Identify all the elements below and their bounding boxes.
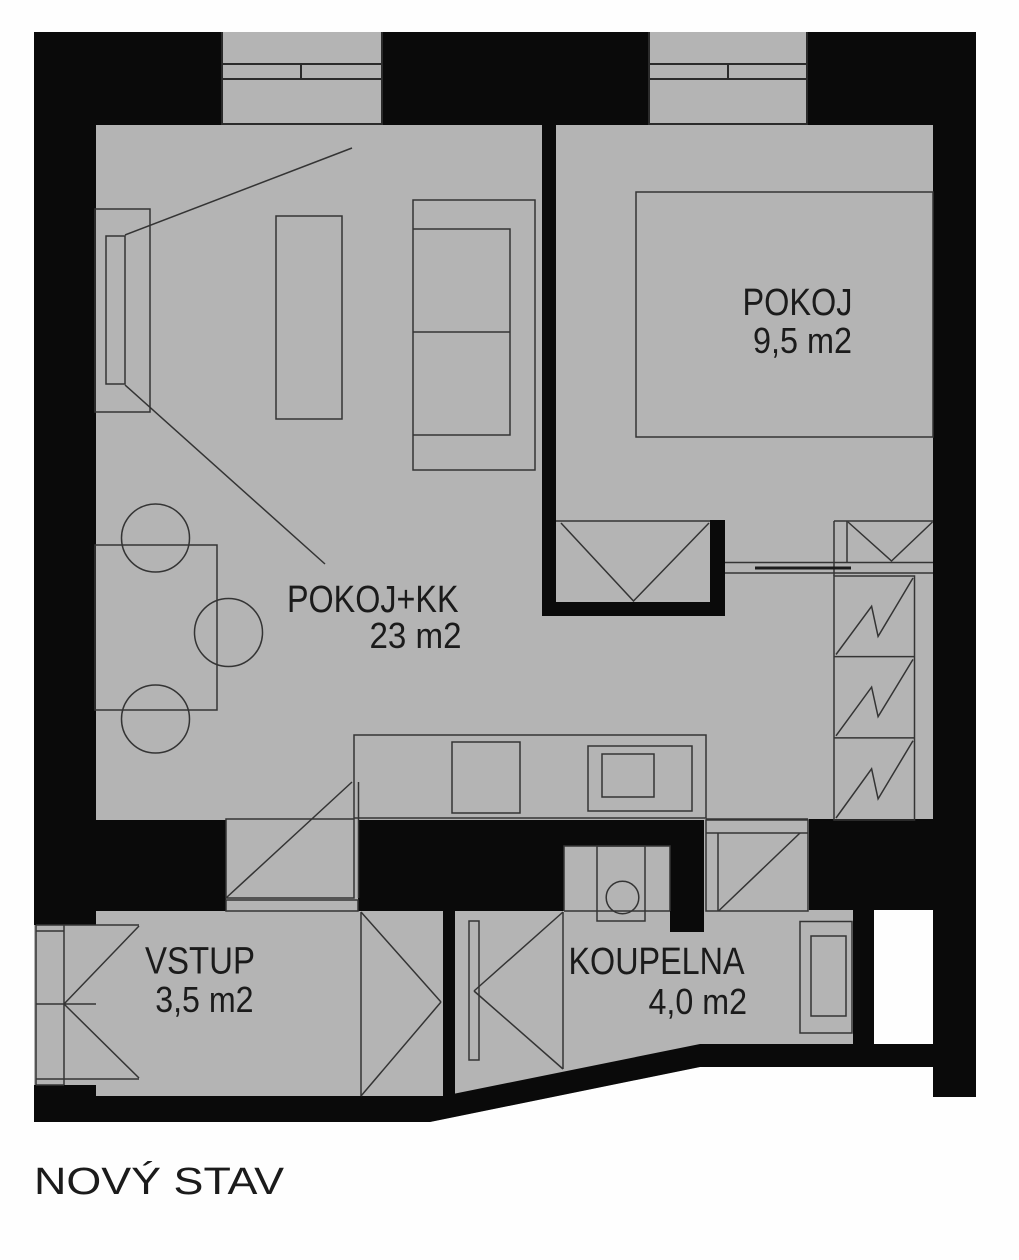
svg-text:NOVÝ STAV: NOVÝ STAV [34,1160,285,1203]
svg-text:3,5 m2: 3,5 m2 [155,979,253,1020]
svg-text:POKOJ: POKOJ [743,282,853,324]
svg-text:VSTUP: VSTUP [145,940,255,982]
svg-text:4,0 m2: 4,0 m2 [649,981,748,1022]
svg-text:23 m2: 23 m2 [370,615,462,656]
svg-text:KOUPELNA: KOUPELNA [569,941,746,983]
svg-text:9,5 m2: 9,5 m2 [753,320,852,361]
